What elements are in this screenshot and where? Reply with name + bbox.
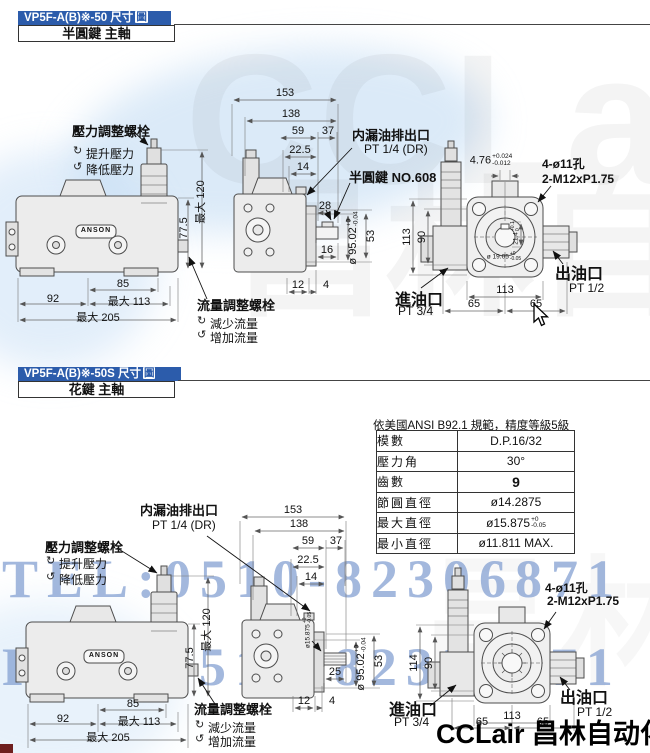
- s1-brand-plate: ANSON: [81, 227, 111, 234]
- dim-max120: 最大 120: [192, 180, 208, 223]
- dim-113-v: 113: [401, 228, 413, 246]
- cw-arrow-icon: ↻: [46, 556, 55, 567]
- s2-brand-plate: ANSON: [89, 652, 119, 659]
- section2-header: VP5F-A(B)※-50S 尺寸圖: [18, 367, 181, 381]
- table-row: 模數 D.P.16/32: [377, 431, 575, 452]
- section2-title: VP5F-A(B)※-50S 尺寸: [24, 368, 141, 380]
- dim-138: 138: [282, 108, 300, 120]
- dim-114: 114: [408, 654, 420, 672]
- dim-4: 4: [329, 695, 335, 707]
- dim-95-02: ø 95.02+0-0.04: [355, 637, 368, 690]
- spec-key: 最大直徑: [377, 513, 458, 534]
- dim-90: 90: [423, 657, 435, 669]
- s2-lower-label: 降低壓力: [59, 571, 107, 588]
- section1-title-glyph: 圖: [135, 11, 148, 23]
- dim-25: 25: [329, 666, 341, 678]
- dim-19-05-tolerance: +0-0.05: [510, 252, 521, 262]
- dim-21-4-tolerance: +0.10: [511, 221, 521, 231]
- cw-arrow-icon: ↻: [195, 720, 204, 731]
- dim-59: 59: [292, 125, 304, 137]
- spec-key: 節圓直徑: [377, 492, 458, 513]
- dim-77-5: 77.5: [178, 217, 190, 238]
- dim-21-4-value: 21.4: [513, 232, 520, 245]
- s1-lower-label: 降低壓力: [86, 161, 134, 178]
- mouse-cursor: [533, 303, 551, 328]
- dim-95-02-value: ø 95.02: [347, 227, 359, 264]
- dim-95-02-value: ø 95.02: [355, 653, 367, 690]
- dim-95-02: ø 95.02+0-0.04: [347, 211, 360, 264]
- dim-4: 4: [323, 279, 329, 291]
- s2-drain-label: 内漏油排出口: [140, 500, 218, 519]
- s2-flow-bolt-label: 流量調整螺栓: [194, 699, 272, 718]
- spline-spec-table: 模數 D.P.16/32 壓力角 30° 齒數 9 節圓直徑 ø14.2875 …: [376, 430, 575, 554]
- spec-value: 9: [458, 472, 575, 493]
- dim-95-02-tolerance: +0-0.04: [347, 211, 360, 226]
- section2-subtitle: 花鍵 主軸: [69, 382, 125, 397]
- s1-increase-label: 增加流量: [210, 329, 258, 346]
- s2-pressure-bolt-label: 壓力調整螺栓: [45, 537, 123, 556]
- table-row: 最大直徑 ø15.875+0-0.05: [377, 513, 575, 534]
- dim-12: 12: [292, 279, 304, 291]
- dim-113-bottom: 113: [496, 284, 514, 296]
- corner-fragment: [0, 744, 13, 753]
- table-row: 壓力角 30°: [377, 451, 575, 472]
- dim-max205: 最大 205: [76, 309, 119, 325]
- dim-65-left: 65: [468, 298, 480, 310]
- s1-drain-pt-label: PT 1/4 (DR): [364, 142, 428, 156]
- s1-holes-label: 4-ø11孔: [542, 155, 585, 172]
- ccw-arrow-icon: ↺: [46, 572, 55, 583]
- dim-22-5: 22.5: [289, 144, 310, 156]
- section1-title: VP5F-A(B)※-50 尺寸: [24, 12, 133, 24]
- dim-max120: 最大 120: [198, 608, 214, 651]
- section1-subtitle-box: 半圓鍵 主軸: [18, 25, 175, 42]
- dim-153: 153: [284, 504, 302, 516]
- s2-thread-label: 2-M12xP1.75: [547, 594, 619, 608]
- spec-value: 30°: [458, 451, 575, 472]
- dim-92: 92: [47, 293, 59, 305]
- dim-max205: 最大 205: [86, 729, 129, 745]
- dim-95-02-tolerance: +0-0.04: [355, 637, 368, 652]
- dim-37: 37: [322, 125, 334, 137]
- spec-value: ø14.2875: [458, 492, 575, 513]
- dim-28: 28: [319, 200, 331, 212]
- dim-53: 53: [365, 230, 377, 242]
- dim-15-875-value: ø15.875: [305, 624, 312, 648]
- cw-arrow-icon: ↻: [73, 146, 82, 157]
- s1-flow-bolt-label: 流量調整螺栓: [197, 295, 275, 314]
- dim-14: 14: [305, 571, 317, 583]
- spec-value: ø15.875+0-0.05: [458, 513, 575, 534]
- s1-outlet-pt-label: PT 1/2: [569, 281, 604, 295]
- s1-pressure-bolt-label: 壓力調整螺栓: [72, 121, 150, 140]
- dim-max113: 最大 113: [108, 293, 151, 309]
- ccw-arrow-icon: ↺: [195, 734, 204, 745]
- dim-85: 85: [117, 278, 129, 290]
- dim-4-76-tolerance: +0.024-0.012: [492, 154, 512, 167]
- dim-15-875: ø15.875+0-0.05: [303, 612, 313, 648]
- spec-key: 齒數: [377, 472, 458, 493]
- dim-138: 138: [290, 518, 308, 530]
- s1-raise-label: 提升壓力: [86, 145, 134, 162]
- s2-drain-pt-label: PT 1/4 (DR): [152, 518, 216, 532]
- dim-19-05: ø 19.05+0-0.05: [487, 252, 521, 262]
- spec-value: D.P.16/32: [458, 431, 575, 452]
- cw-arrow-icon: ↻: [197, 316, 206, 327]
- dim-90: 90: [416, 231, 428, 243]
- dim-153: 153: [276, 87, 294, 99]
- spec-value-number: ø15.875: [486, 516, 530, 530]
- section2-subtitle-box: 花鍵 主軸: [18, 381, 175, 398]
- s1-thread-label: 2-M12xP1.75: [542, 172, 614, 186]
- spec-value: ø11.811 MAX.: [458, 533, 575, 554]
- s2-raise-label: 提升壓力: [59, 555, 107, 572]
- dim-53: 53: [373, 655, 385, 667]
- section2-rule: [178, 380, 650, 381]
- spec-value-tolerance: +0-0.05: [531, 517, 546, 530]
- dim-12: 12: [298, 695, 310, 707]
- dim-16: 16: [321, 244, 333, 256]
- ccw-arrow-icon: ↺: [73, 162, 82, 173]
- section1-subtitle: 半圓鍵 主軸: [62, 26, 131, 41]
- s2-inlet-pt-label: PT 3/4: [394, 715, 429, 729]
- datasheet-page: CCLair 昌林自动化 昌林自动化 TEL:0510-82306871 FAX…: [0, 0, 650, 753]
- dim-15-875-tolerance: +0-0.05: [303, 612, 313, 623]
- dim-85: 85: [127, 698, 139, 710]
- spec-key: 最小直徑: [377, 533, 458, 554]
- spec-key: 壓力角: [377, 451, 458, 472]
- dim-4-76-value: 4.76: [470, 154, 491, 166]
- dim-19-05-value: ø 19.05: [487, 254, 509, 261]
- dim-92: 92: [57, 713, 69, 725]
- s1-key-label: 半圓鍵 NO.608: [349, 167, 436, 186]
- dim-14: 14: [297, 161, 309, 173]
- s1-inlet-pt-label: PT 3/4: [398, 304, 433, 318]
- vendor-brand-text: CCLair 昌林自动化: [436, 712, 650, 751]
- table-row: 節圓直徑 ø14.2875: [377, 492, 575, 513]
- section1-header: VP5F-A(B)※-50 尺寸圖: [18, 11, 171, 25]
- dim-77-5: 77.5: [184, 647, 196, 668]
- dim-22-5: 22.5: [297, 554, 318, 566]
- s2-increase-label: 增加流量: [208, 733, 256, 750]
- ccw-arrow-icon: ↺: [197, 330, 206, 341]
- dim-37: 37: [330, 535, 342, 547]
- table-row: 最小直徑 ø11.811 MAX.: [377, 533, 575, 554]
- spec-key: 模數: [377, 431, 458, 452]
- table-row: 齒數 9: [377, 472, 575, 493]
- dim-max113: 最大 113: [118, 713, 161, 729]
- dim-21-4: 21.4+0.10: [511, 221, 521, 245]
- dim-4-76: 4.76+0.024-0.012: [470, 154, 512, 167]
- section1-rule: [174, 24, 650, 25]
- dim-59: 59: [302, 535, 314, 547]
- section2-title-glyph: 圖: [143, 367, 156, 379]
